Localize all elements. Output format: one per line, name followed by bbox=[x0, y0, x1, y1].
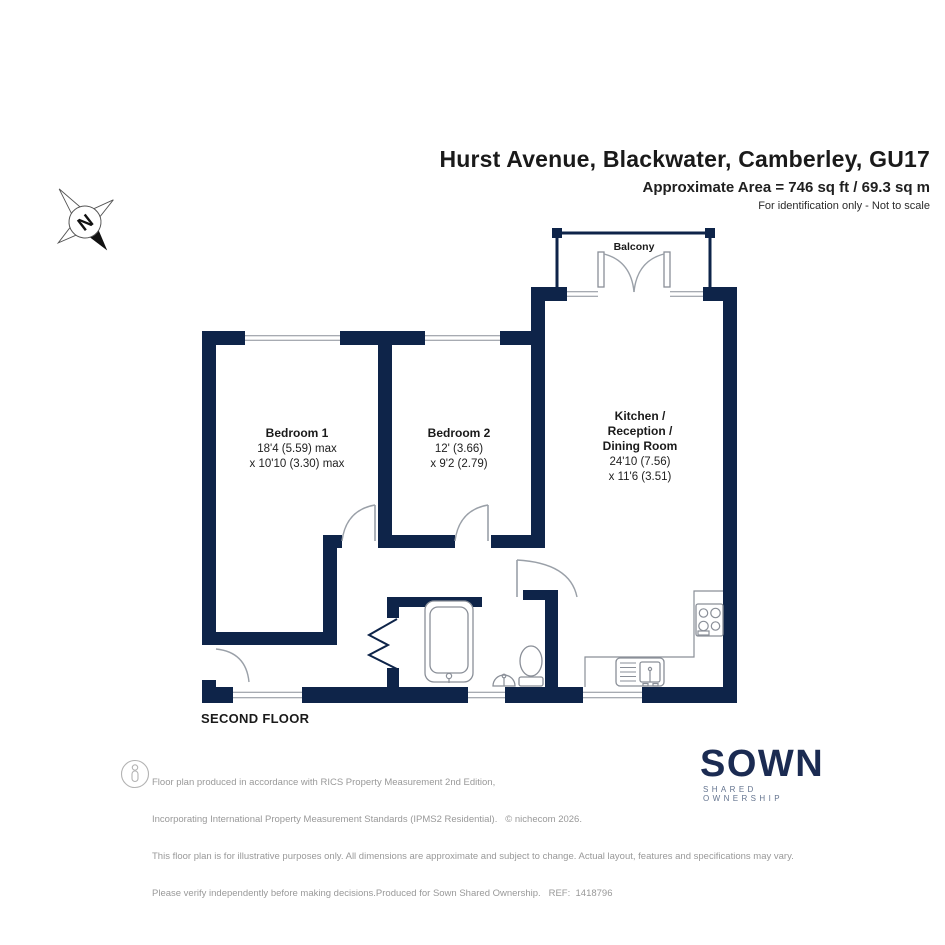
hob bbox=[696, 604, 723, 636]
kitchen-name3: Dining Room bbox=[603, 439, 678, 453]
balcony: Balcony bbox=[552, 228, 715, 292]
kitchen-fixtures bbox=[585, 591, 723, 687]
bedroom2-window bbox=[425, 331, 500, 345]
balcony-left-window bbox=[567, 287, 598, 301]
bathroom-fixtures bbox=[425, 601, 543, 686]
disclaimer-line: Please verify independently before makin… bbox=[152, 888, 794, 900]
room-label-bedroom2: Bedroom 2 12' (3.66) x 9'2 (2.79) bbox=[428, 426, 491, 470]
bifold-cupboard-door bbox=[369, 619, 397, 669]
bedroom1-name: Bedroom 1 bbox=[266, 426, 329, 440]
person-icon bbox=[119, 757, 151, 791]
bedroom1-door bbox=[342, 505, 375, 541]
sown-logo: SOWN SHARED OWNERSHIP bbox=[700, 744, 830, 803]
balcony-label: Balcony bbox=[614, 241, 655, 253]
kitchen-window bbox=[583, 687, 642, 703]
disclaimer-line: This floor plan is for illustrative purp… bbox=[152, 851, 794, 863]
kitchen-name1: Kitchen / bbox=[615, 409, 666, 423]
kitchen-dim2: x 11'6 (3.51) bbox=[609, 471, 672, 483]
compass-rose-icon: N bbox=[32, 167, 135, 272]
bedroom1-window bbox=[245, 331, 340, 345]
bedroom2-name: Bedroom 2 bbox=[428, 426, 491, 440]
kitchen-sink bbox=[616, 658, 664, 686]
disclaimer-line: Incorporating International Property Mea… bbox=[152, 814, 794, 826]
sown-logo-subtext: SHARED OWNERSHIP bbox=[700, 785, 830, 803]
toilet bbox=[519, 646, 543, 686]
floor-label: SECOND FLOOR bbox=[201, 711, 309, 726]
kitchen-dim1: 24'10 (7.56) bbox=[609, 456, 670, 468]
bedroom2-door bbox=[455, 505, 488, 541]
room-label-kitchen: Kitchen / Reception / Dining Room 24'10 … bbox=[603, 409, 678, 483]
disclaimer: Floor plan produced in accordance with R… bbox=[152, 752, 794, 913]
balcony-french-doors bbox=[598, 252, 670, 292]
basin bbox=[493, 674, 515, 686]
bedroom2-dim2: x 9'2 (2.79) bbox=[430, 458, 487, 470]
entrance-door-arc bbox=[216, 649, 249, 682]
sown-logo-text: SOWN bbox=[700, 744, 830, 784]
floorplan-page: { "header": { "title": "Hurst Avenue, Bl… bbox=[0, 0, 945, 945]
bath-tub bbox=[425, 601, 473, 683]
disclaimer-line: Floor plan produced in accordance with R… bbox=[152, 777, 794, 789]
bedroom1-dim1: 18'4 (5.59) max bbox=[257, 443, 337, 455]
hall-window bbox=[233, 687, 302, 703]
kitchen-name2: Reception / bbox=[608, 424, 673, 438]
bedroom1-dim2: x 10'10 (3.30) max bbox=[250, 458, 345, 470]
bathroom-window bbox=[468, 687, 505, 703]
balcony-right-window bbox=[670, 287, 703, 301]
bedroom2-dim1: 12' (3.66) bbox=[435, 443, 483, 455]
room-label-bedroom1: Bedroom 1 18'4 (5.59) max x 10'10 (3.30)… bbox=[250, 426, 345, 470]
